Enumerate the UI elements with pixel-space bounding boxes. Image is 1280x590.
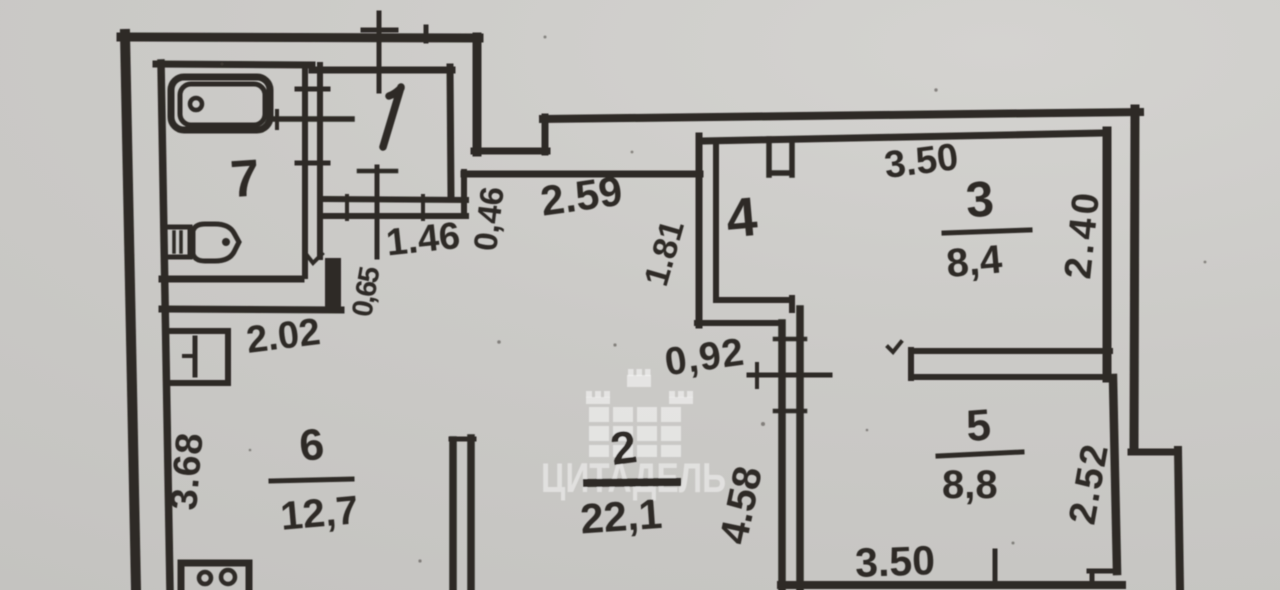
svg-text:3: 3: [964, 170, 996, 228]
svg-text:1.46: 1.46: [384, 215, 462, 265]
svg-text:0,65: 0,65: [346, 264, 386, 319]
svg-text:22,1: 22,1: [579, 490, 664, 543]
svg-text:1.81: 1.81: [637, 216, 692, 290]
svg-text:5: 5: [965, 400, 993, 451]
svg-text:0,46: 0,46: [466, 185, 511, 253]
svg-text:3.68: 3.68: [163, 430, 212, 511]
svg-text:3.50: 3.50: [882, 136, 961, 187]
svg-text:0,92: 0,92: [662, 331, 747, 385]
svg-text:7: 7: [229, 149, 262, 209]
svg-text:8,8: 8,8: [942, 463, 998, 507]
svg-text:4: 4: [724, 185, 760, 249]
svg-text:2.59: 2.59: [538, 167, 625, 225]
svg-text:2.02: 2.02: [244, 311, 323, 362]
svg-text:2.40: 2.40: [1057, 187, 1108, 281]
svg-text:3.50: 3.50: [854, 537, 935, 586]
svg-text:2.52: 2.52: [1062, 440, 1118, 528]
svg-text:8,4: 8,4: [945, 237, 1005, 286]
svg-text:6: 6: [297, 420, 326, 471]
svg-text:12,7: 12,7: [279, 488, 360, 539]
